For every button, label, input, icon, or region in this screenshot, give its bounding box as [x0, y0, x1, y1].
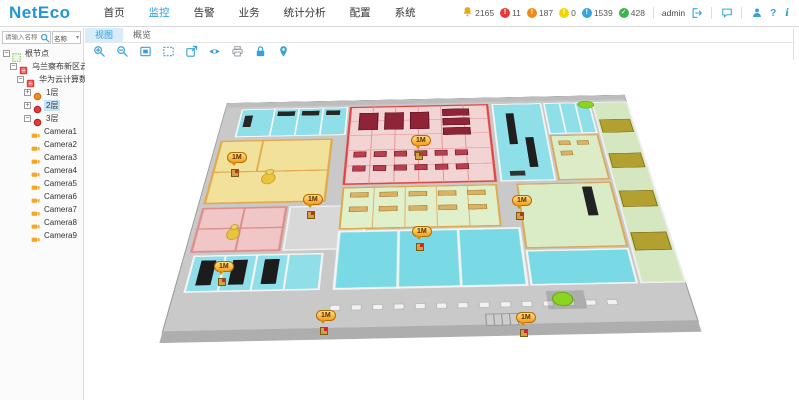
- tree-toggle-icon[interactable]: +: [24, 102, 31, 109]
- divider: [711, 7, 712, 19]
- device-tree-panel: 名称 ▾ −根节点−乌兰察布新区云计算−华为云计算数据中心+1层+2层−3层Ca…: [0, 28, 84, 400]
- tree-node-floor-3[interactable]: −3层: [0, 112, 83, 125]
- tree-node-label: Camera6: [42, 192, 79, 201]
- alarm-count: 428: [631, 8, 645, 18]
- alarm-summary: 2165!11!187!0!1539✓428: [462, 4, 645, 22]
- tree-node-label: 3层: [44, 113, 60, 124]
- monitor-view: 视图概览: [85, 28, 794, 400]
- device-alarm-icon: [416, 243, 424, 251]
- floor-plan-3d[interactable]: [139, 89, 727, 390]
- total-alarm-icon: [462, 4, 473, 22]
- alarm-badge-total[interactable]: 2165: [462, 4, 494, 22]
- tree-node-label: 1层: [44, 87, 60, 98]
- camera-icon: [31, 231, 40, 240]
- marker-label: 1M: [411, 135, 431, 146]
- print-icon[interactable]: [230, 45, 244, 59]
- user-icon[interactable]: [750, 7, 763, 20]
- nav-item-alarm[interactable]: 告警: [183, 0, 226, 26]
- tree-toggle-icon[interactable]: −: [10, 63, 17, 70]
- tree-node-camera-5[interactable]: Camera5: [0, 177, 83, 190]
- tree-node-camera-8[interactable]: Camera8: [0, 216, 83, 229]
- alarm-badge-minor[interactable]: !0: [559, 8, 576, 18]
- nav-item-statistics[interactable]: 统计分析: [273, 0, 337, 26]
- marker-label: 1M: [512, 195, 532, 206]
- alarm-badge-cleared[interactable]: ✓428: [619, 8, 645, 18]
- device-alarm-icon: [307, 211, 315, 219]
- tree-node-camera-3[interactable]: Camera3: [0, 151, 83, 164]
- info-icon[interactable]: i: [783, 8, 791, 19]
- plan-marker-4[interactable]: 1M: [303, 188, 323, 219]
- divider: [653, 7, 654, 19]
- nav-item-system[interactable]: 系统: [384, 0, 427, 26]
- tree-node-camera-1[interactable]: Camera1: [0, 125, 83, 138]
- device-tree: −根节点−乌兰察布新区云计算−华为云计算数据中心+1层+2层−3层Camera1…: [0, 46, 83, 242]
- marker-label: 1M: [516, 312, 536, 323]
- map-toolbar: [85, 43, 793, 60]
- floor-orange-icon: [33, 88, 42, 97]
- critical-alarm-icon: !: [500, 8, 510, 18]
- tree-node-root[interactable]: −根节点: [0, 47, 83, 60]
- tree-node-label: Camera3: [42, 153, 79, 162]
- device-alarm-icon: [415, 152, 423, 160]
- tree-node-camera-2[interactable]: Camera2: [0, 138, 83, 151]
- tree-node-label: 2层: [44, 100, 60, 111]
- tree-toggle-icon[interactable]: −: [3, 50, 10, 57]
- minor-alarm-icon: !: [559, 8, 569, 18]
- device-alarm-icon: [520, 329, 528, 337]
- tree-node-camera-6[interactable]: Camera6: [0, 190, 83, 203]
- tree-node-dc-huawei[interactable]: −华为云计算数据中心: [0, 73, 83, 86]
- chevron-down-icon: ▾: [76, 34, 79, 41]
- logout-icon[interactable]: [690, 7, 703, 20]
- search-icon[interactable]: [40, 32, 50, 43]
- device-alarm-icon: [320, 327, 328, 335]
- marker-label: 1M: [227, 152, 247, 163]
- username[interactable]: admin: [662, 8, 685, 18]
- tree-node-label: 根节点: [23, 48, 51, 59]
- nav-item-config[interactable]: 配置: [339, 0, 382, 26]
- floor-red-icon: [33, 101, 42, 110]
- device-alarm-icon: [218, 278, 226, 286]
- filter-label: 名称: [54, 33, 67, 43]
- camera-icon: [31, 153, 40, 162]
- help-icon[interactable]: ?: [768, 8, 778, 19]
- tree-node-label: Camera4: [42, 166, 79, 175]
- tree-node-camera-9[interactable]: Camera9: [0, 229, 83, 242]
- tree-node-floor-1[interactable]: +1层: [0, 86, 83, 99]
- tree-node-label: Camera5: [42, 179, 79, 188]
- view-eye-icon[interactable]: [207, 45, 221, 59]
- region-select-icon[interactable]: [161, 45, 175, 59]
- device-alarm-icon: [231, 169, 239, 177]
- tree-node-label: Camera7: [42, 205, 79, 214]
- marker-label: 1M: [303, 194, 323, 205]
- view-tabs: 视图概览: [85, 28, 793, 43]
- marker-label: 1M: [316, 310, 336, 321]
- marker-label: 1M: [412, 226, 432, 237]
- camera-icon: [31, 192, 40, 201]
- device-alarm-icon: [516, 212, 524, 220]
- tab-overview[interactable]: 概览: [123, 28, 161, 42]
- plan-marker-8[interactable]: 1M: [516, 306, 536, 337]
- fullscreen-icon[interactable]: [184, 45, 198, 59]
- alarm-count: 1539: [594, 8, 613, 18]
- message-icon[interactable]: [720, 7, 733, 20]
- tree-toggle-icon[interactable]: −: [17, 76, 24, 83]
- map-canvas: 1M1M1M1M1M1M1M1M: [85, 60, 794, 400]
- tree-toggle-icon[interactable]: +: [24, 89, 31, 96]
- tree-node-camera-4[interactable]: Camera4: [0, 164, 83, 177]
- tree-node-camera-7[interactable]: Camera7: [0, 203, 83, 216]
- zoom-in-icon[interactable]: [92, 45, 106, 59]
- alarm-badge-critical[interactable]: !11: [500, 8, 521, 18]
- site-icon: [19, 62, 28, 71]
- warning-alarm-icon: !: [582, 8, 592, 18]
- alarm-count: 187: [539, 8, 553, 18]
- alarm-badge-warning[interactable]: !1539: [582, 8, 613, 18]
- plan-marker-6[interactable]: 1M: [214, 255, 234, 286]
- camera-icon: [31, 179, 40, 188]
- alarm-count: 0: [571, 8, 576, 18]
- neteco-logo: NetEco: [9, 3, 71, 23]
- tree-toggle-icon[interactable]: −: [24, 115, 31, 122]
- nav-item-home[interactable]: 首页: [93, 0, 136, 26]
- alarm-badge-major[interactable]: !187: [527, 8, 553, 18]
- marker-label: 1M: [214, 261, 234, 272]
- plan-marker-7[interactable]: 1M: [316, 304, 336, 335]
- plan-marker-3[interactable]: 1M: [512, 189, 532, 220]
- header-right: 2165!11!187!0!1539✓428 admin ? i: [462, 4, 799, 22]
- tab-view[interactable]: 视图: [85, 28, 123, 42]
- search-box: [2, 31, 51, 44]
- tree-node-floor-2[interactable]: +2层: [0, 99, 83, 112]
- lock-icon[interactable]: [253, 45, 267, 59]
- plan-marker-2[interactable]: 1M: [411, 129, 431, 160]
- location-icon[interactable]: [276, 45, 290, 59]
- nav-item-service[interactable]: 业务: [228, 0, 271, 26]
- alarm-count: 2165: [475, 8, 494, 18]
- floor-red-icon: [33, 114, 42, 123]
- plan-marker-1[interactable]: 1M: [227, 146, 247, 177]
- site-icon: [26, 75, 35, 84]
- search-input[interactable]: [3, 34, 40, 41]
- camera-icon: [31, 140, 40, 149]
- alarm-count: 11: [512, 8, 521, 18]
- zoom-out-icon[interactable]: [115, 45, 129, 59]
- top-bar: NetEco 首页监控告警业务统计分析配置系统 2165!11!187!0!15…: [0, 0, 799, 27]
- tree-node-label: Camera9: [42, 231, 79, 240]
- plan-marker-5[interactable]: 1M: [412, 220, 432, 251]
- root-icon: [12, 49, 21, 58]
- nav-item-monitor[interactable]: 监控: [138, 0, 181, 26]
- main-menu: 首页监控告警业务统计分析配置系统: [93, 0, 427, 26]
- tree-node-label: Camera2: [42, 140, 79, 149]
- tree-node-label: Camera8: [42, 218, 79, 227]
- floor-plan-svg: [139, 89, 727, 390]
- divider: [741, 7, 742, 19]
- major-alarm-icon: !: [527, 8, 537, 18]
- fit-view-icon[interactable]: [138, 45, 152, 59]
- camera-icon: [31, 218, 40, 227]
- filter-select[interactable]: 名称 ▾: [52, 31, 81, 44]
- tree-node-label: Camera1: [42, 127, 79, 136]
- cleared-alarm-icon: ✓: [619, 8, 629, 18]
- camera-icon: [31, 166, 40, 175]
- camera-icon: [31, 127, 40, 136]
- camera-icon: [31, 205, 40, 214]
- tree-search-row: 名称 ▾: [0, 28, 83, 46]
